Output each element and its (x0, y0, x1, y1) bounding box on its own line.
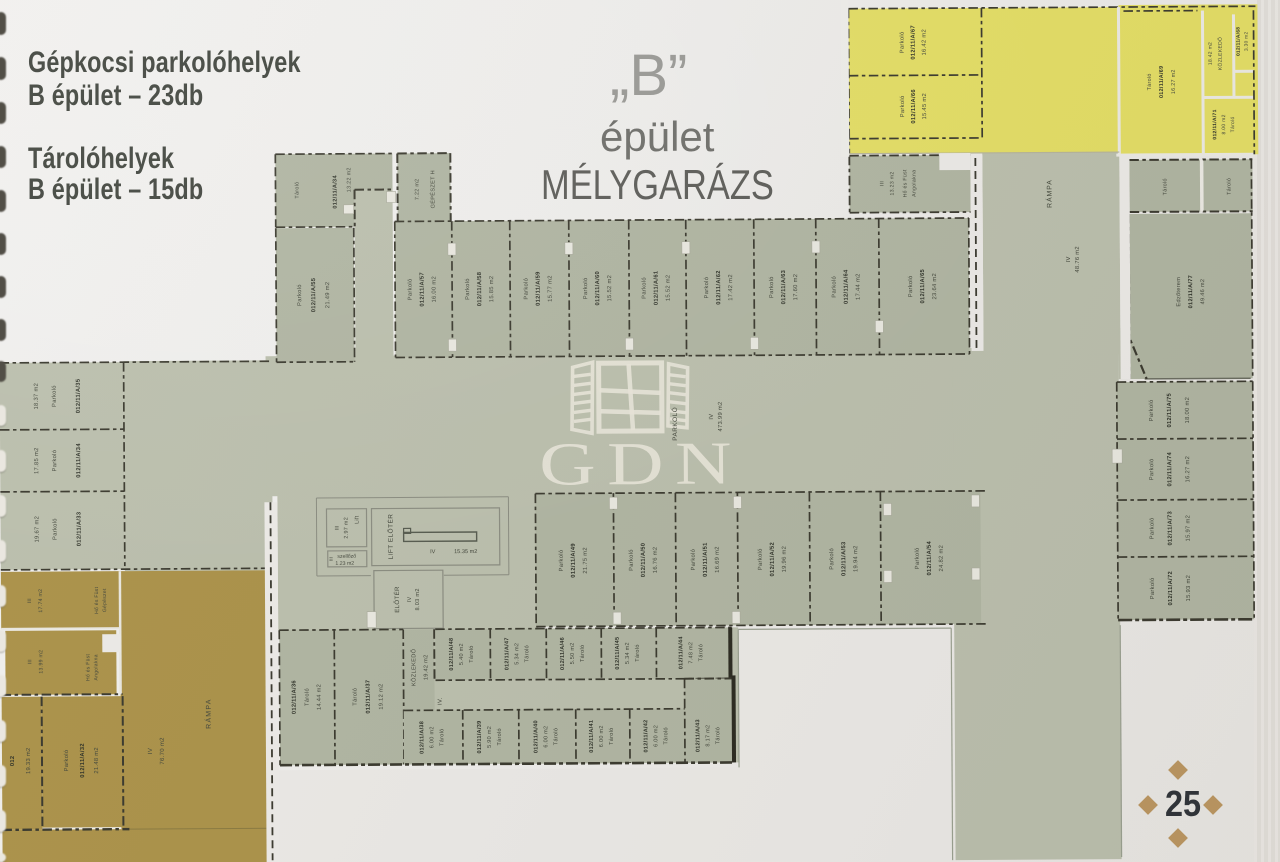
svg-text:ELŐTÉR: ELŐTÉR (394, 586, 401, 613)
svg-text:III: III (27, 598, 33, 603)
svg-text:49.46 m2: 49.46 m2 (1200, 279, 1206, 305)
svg-text:Tároló: Tároló (294, 182, 300, 199)
svg-text:76.70 m2: 76.70 m2 (160, 737, 166, 765)
svg-text:012/11/A/45: 012/11/A/45 (615, 637, 621, 670)
svg-text:012/11/A/53: 012/11/A/53 (841, 541, 847, 576)
svg-text:15.85 m2: 15.85 m2 (489, 276, 495, 303)
svg-text:012/11/A/39: 012/11/A/39 (477, 720, 483, 753)
svg-text:012/11/A/68: 012/11/A/68 (1236, 27, 1242, 56)
svg-text:Tároló: Tároló (439, 728, 445, 745)
svg-text:Parkoló: Parkoló (524, 278, 530, 300)
svg-text:Lift: Lift (355, 515, 361, 524)
svg-text:012/11/A/43: 012/11/A/43 (695, 719, 701, 752)
svg-text:Parkoló: Parkoló (52, 385, 58, 407)
svg-text:15.35 m2: 15.35 m2 (454, 549, 477, 555)
svg-text:Tároló: Tároló (305, 688, 311, 706)
svg-text:Parkoló: Parkoló (915, 547, 921, 569)
svg-text:Parkoló: Parkoló (900, 95, 906, 117)
svg-text:6.00 m2: 6.00 m2 (543, 726, 549, 748)
svg-text:RÁMPA: RÁMPA (1044, 179, 1053, 208)
svg-text:18.00 m2: 18.00 m2 (1185, 397, 1191, 424)
svg-text:7.22 m2: 7.22 m2 (414, 179, 420, 201)
svg-text:Tároló: Tároló (1147, 73, 1153, 90)
svg-text:6.00 m2: 6.00 m2 (599, 725, 605, 747)
svg-text:Tároló: Tároló (524, 645, 530, 662)
svg-text:Parkoló: Parkoló (465, 278, 471, 300)
svg-text:Edzőterem: Edzőterem (1176, 277, 1182, 307)
svg-text:48.76 m2: 48.76 m2 (1075, 246, 1081, 273)
svg-text:Parkoló: Parkoló (1150, 577, 1156, 599)
svg-text:19.94 m2: 19.94 m2 (853, 545, 859, 572)
svg-text:13.23 m2: 13.23 m2 (889, 171, 895, 195)
svg-text:Parkoló: Parkoló (769, 276, 775, 298)
svg-text:IV: IV (407, 596, 413, 602)
svg-text:19.96 m2: 19.96 m2 (782, 546, 788, 573)
svg-text:Tároló: Tároló (1230, 116, 1236, 132)
svg-text:012/11/A/58: 012/11/A/58 (477, 271, 483, 306)
svg-text:17.44 m2: 17.44 m2 (856, 273, 862, 300)
svg-text:012/11/A/49: 012/11/A/49 (571, 543, 577, 578)
svg-text:Tároló: Tároló (469, 645, 475, 662)
svg-text:5.50 m2: 5.50 m2 (570, 642, 576, 664)
svg-text:16.42 m2: 16.42 m2 (922, 29, 928, 56)
svg-text:012/11/A/47: 012/11/A/47 (504, 637, 510, 670)
svg-text:21.49 m2: 21.49 m2 (325, 282, 331, 309)
svg-text:2.97 m2: 2.97 m2 (344, 517, 350, 539)
svg-text:012/11/A/71: 012/11/A/71 (1212, 109, 1218, 139)
svg-text:Parkoló: Parkoló (52, 450, 58, 472)
svg-text:Angolakna: Angolakna (93, 654, 99, 680)
svg-text:012/11/A/74: 012/11/A/74 (1167, 451, 1173, 486)
svg-text:15.52 m2: 15.52 m2 (607, 275, 613, 302)
svg-text:15.97 m2: 15.97 m2 (1186, 515, 1192, 542)
svg-text:3.30 m2: 3.30 m2 (1244, 32, 1250, 52)
svg-text:18.42 m2: 18.42 m2 (1208, 42, 1214, 65)
svg-text:012/11/A/75: 012/11/A/75 (1167, 392, 1173, 427)
svg-text:012/11/A/55: 012/11/A/55 (311, 277, 317, 312)
svg-text:GÉPÉSZET H: GÉPÉSZET H (429, 170, 436, 208)
svg-text:Tároló: Tároló (497, 728, 503, 745)
svg-text:012/11/A/65: 012/11/A/65 (920, 268, 926, 303)
svg-text:III: III (879, 181, 885, 186)
svg-text:IV.: IV. (438, 697, 444, 705)
svg-text:15.52 m2: 15.52 m2 (666, 275, 672, 302)
svg-text:17.60 m2: 17.60 m2 (793, 274, 799, 301)
svg-text:012/11/A/32: 012/11/A/32 (80, 743, 86, 778)
svg-text:Parkoló: Parkoló (908, 275, 914, 297)
svg-text:012/11/A/35: 012/11/A/35 (76, 378, 82, 413)
svg-text:Tároló: Tároló (353, 688, 359, 706)
svg-text:012/11/A/72: 012/11/A/72 (1168, 571, 1174, 606)
svg-text:Parkoló: Parkoló (832, 276, 838, 298)
svg-text:8.00 m2: 8.00 m2 (1221, 114, 1227, 134)
svg-text:21.48 m2: 21.48 m2 (94, 747, 100, 774)
svg-text:Parkoló: Parkoló (829, 548, 835, 570)
svg-text:012/11/A/63: 012/11/A/63 (781, 269, 787, 304)
svg-text:Tároló: Tároló (580, 645, 586, 662)
svg-text:13.99 m2: 13.99 m2 (38, 650, 44, 674)
svg-text:Parkoló: Parkoló (64, 750, 70, 772)
svg-text:15.93 m2: 15.93 m2 (1186, 575, 1192, 602)
svg-text:012/11/A/62: 012/11/A/62 (716, 270, 722, 305)
svg-text:KÖZLEKEDŐ: KÖZLEKEDŐ (1217, 37, 1224, 70)
svg-text:15.45 m2: 15.45 m2 (922, 93, 928, 120)
svg-text:Parkoló: Parkoló (704, 277, 710, 299)
svg-text:Parkoló: Parkoló (642, 277, 648, 299)
svg-text:Parkoló: Parkoló (53, 518, 59, 540)
svg-text:012/11/A/64: 012/11/A/64 (844, 269, 850, 304)
svg-text:1.23 m2: 1.23 m2 (335, 561, 354, 567)
svg-text:17.74 m2: 17.74 m2 (38, 589, 44, 613)
svg-text:012/11/A/51: 012/11/A/51 (703, 542, 709, 577)
svg-text:012/11/A/66: 012/11/A/66 (911, 89, 917, 124)
svg-text:012/11/A/60: 012/11/A/60 (595, 271, 601, 306)
svg-text:Hő és Füst: Hő és Füst (902, 169, 908, 197)
svg-text:16.27 m2: 16.27 m2 (1171, 69, 1177, 94)
svg-text:012/11/A/73: 012/11/A/73 (1167, 510, 1173, 545)
svg-text:III: III (335, 525, 341, 530)
svg-text:6.00 m2: 6.00 m2 (429, 726, 435, 748)
svg-text:IV: IV (148, 748, 154, 754)
svg-text:18.37 m2: 18.37 m2 (34, 383, 40, 410)
svg-text:19.67 m2: 19.67 m2 (35, 516, 41, 543)
svg-text:23.64 m2: 23.64 m2 (932, 273, 938, 300)
svg-text:012/11/A/34: 012/11/A/34 (332, 175, 338, 209)
svg-text:19.33 m2: 19.33 m2 (26, 747, 32, 774)
svg-text:012/11/A/61: 012/11/A/61 (654, 270, 660, 305)
svg-text:IV: IV (709, 414, 715, 420)
svg-text:8.03 m2: 8.03 m2 (415, 588, 421, 610)
svg-text:Tároló: Tároló (635, 644, 641, 661)
svg-text:15.77 m2: 15.77 m2 (548, 275, 554, 302)
svg-text:5.40 m2: 5.40 m2 (459, 643, 465, 665)
svg-text:LIFT ELŐTÉR: LIFT ELŐTÉR (385, 514, 394, 560)
svg-text:012/11/A/37: 012/11/A/37 (366, 680, 372, 714)
svg-text:Hő és Füst: Hő és Füst (85, 653, 91, 681)
svg-text:Parkoló: Parkoló (297, 284, 303, 306)
svg-text:Tároló: Tároló (553, 728, 559, 745)
svg-text:16.00 m2: 16.00 m2 (432, 276, 438, 303)
svg-text:012/11/A/42: 012/11/A/42 (643, 719, 649, 752)
svg-text:16.27 m2: 16.27 m2 (1185, 456, 1191, 483)
svg-text:GDN: GDN (539, 430, 743, 498)
svg-text:16.69 m2: 16.69 m2 (715, 546, 721, 573)
svg-text:Angolakna: Angolakna (911, 170, 917, 197)
svg-text:14.44 m2: 14.44 m2 (317, 684, 323, 710)
svg-text:Parkoló: Parkoló (408, 278, 414, 300)
svg-text:012/11/A/67: 012/11/A/67 (911, 25, 917, 60)
svg-text:012/11/A/34: 012/11/A/34 (76, 443, 82, 478)
svg-text:RÁMPA: RÁMPA (204, 698, 213, 728)
svg-text:Tároló: Tároló (1162, 178, 1168, 195)
svg-text:III: III (27, 659, 33, 664)
svg-text:KÖZLEKEDŐ: KÖZLEKEDŐ (410, 648, 417, 686)
svg-text:Parkoló: Parkoló (559, 550, 565, 572)
svg-text:012/11/A/36: 012/11/A/36 (292, 680, 298, 714)
svg-text:473.99 m2: 473.99 m2 (718, 401, 724, 431)
svg-text:Parkoló: Parkoló (900, 31, 906, 53)
svg-text:5.34 m2: 5.34 m2 (514, 643, 520, 665)
svg-text:Parkoló: Parkoló (629, 549, 635, 571)
svg-text:012/11/A/69: 012/11/A/69 (1159, 66, 1165, 98)
svg-text:IV: IV (430, 549, 436, 555)
svg-text:012/11/A/38: 012/11/A/38 (419, 721, 425, 754)
svg-text:Gépészet: Gépészet (102, 588, 108, 612)
svg-text:Tároló: Tároló (609, 727, 615, 744)
svg-text:012/11/A/33: 012/11/A/33 (76, 511, 82, 546)
svg-text:8.17 m2: 8.17 m2 (705, 725, 711, 747)
svg-text:IV: IV (1066, 256, 1072, 262)
svg-text:Parkoló: Parkoló (758, 548, 764, 570)
svg-text:012/11/A/40: 012/11/A/40 (533, 720, 539, 753)
svg-text:012/11/A/59: 012/11/A/59 (536, 271, 542, 306)
svg-text:012/11/A/77: 012/11/A/77 (1188, 275, 1194, 309)
svg-text:5.90 m2: 5.90 m2 (487, 726, 493, 748)
svg-text:012/11/A/50: 012/11/A/50 (641, 543, 647, 578)
svg-text:012/11/A/52: 012/11/A/52 (770, 542, 776, 577)
svg-text:Parkoló: Parkoló (1149, 458, 1155, 480)
svg-text:6.00 m2: 6.00 m2 (653, 725, 659, 747)
svg-text:Tároló: Tároló (1226, 178, 1232, 195)
svg-text:Hő és Füst: Hő és Füst (94, 586, 100, 614)
svg-text:PARKOLÓ: PARKOLÓ (670, 407, 679, 441)
svg-text:szellőző: szellőző (337, 554, 356, 560)
svg-text:19.12 m2: 19.12 m2 (379, 684, 385, 710)
svg-text:012/11/A/41: 012/11/A/41 (589, 720, 595, 753)
svg-text:012/11/A/44: 012/11/A/44 (678, 636, 684, 670)
svg-text:17.85 m2: 17.85 m2 (34, 447, 40, 474)
svg-text:Tároló: Tároló (663, 727, 669, 744)
svg-text:012/11/A/48: 012/11/A/48 (449, 638, 455, 671)
svg-text:21.75 m2: 21.75 m2 (583, 547, 589, 574)
svg-text:012/11/A/46: 012/11/A/46 (560, 637, 566, 670)
svg-text:13.22 m2: 13.22 m2 (346, 167, 352, 192)
svg-text:Parkoló: Parkoló (691, 549, 697, 571)
svg-text:Parkoló: Parkoló (583, 277, 589, 299)
svg-text:012/11/A/54: 012/11/A/54 (927, 540, 933, 575)
svg-text:19.42 m2: 19.42 m2 (423, 654, 429, 680)
svg-text:16.76 m2: 16.76 m2 (653, 547, 659, 574)
svg-text:Parkoló: Parkoló (1150, 517, 1156, 539)
svg-text:Tároló: Tároló (715, 727, 721, 744)
svg-text:III: III (329, 556, 335, 561)
svg-text:012: 012 (10, 756, 16, 767)
svg-text:24.82 m2: 24.82 m2 (939, 545, 945, 572)
svg-text:012/11/A/57: 012/11/A/57 (420, 272, 426, 307)
svg-text:Parkoló: Parkoló (1149, 399, 1155, 421)
svg-text:7.48 m2: 7.48 m2 (688, 642, 694, 664)
svg-text:17.42 m2: 17.42 m2 (728, 274, 734, 301)
svg-text:5.34 m2: 5.34 m2 (625, 642, 631, 664)
svg-text:Tároló: Tároló (698, 644, 704, 661)
